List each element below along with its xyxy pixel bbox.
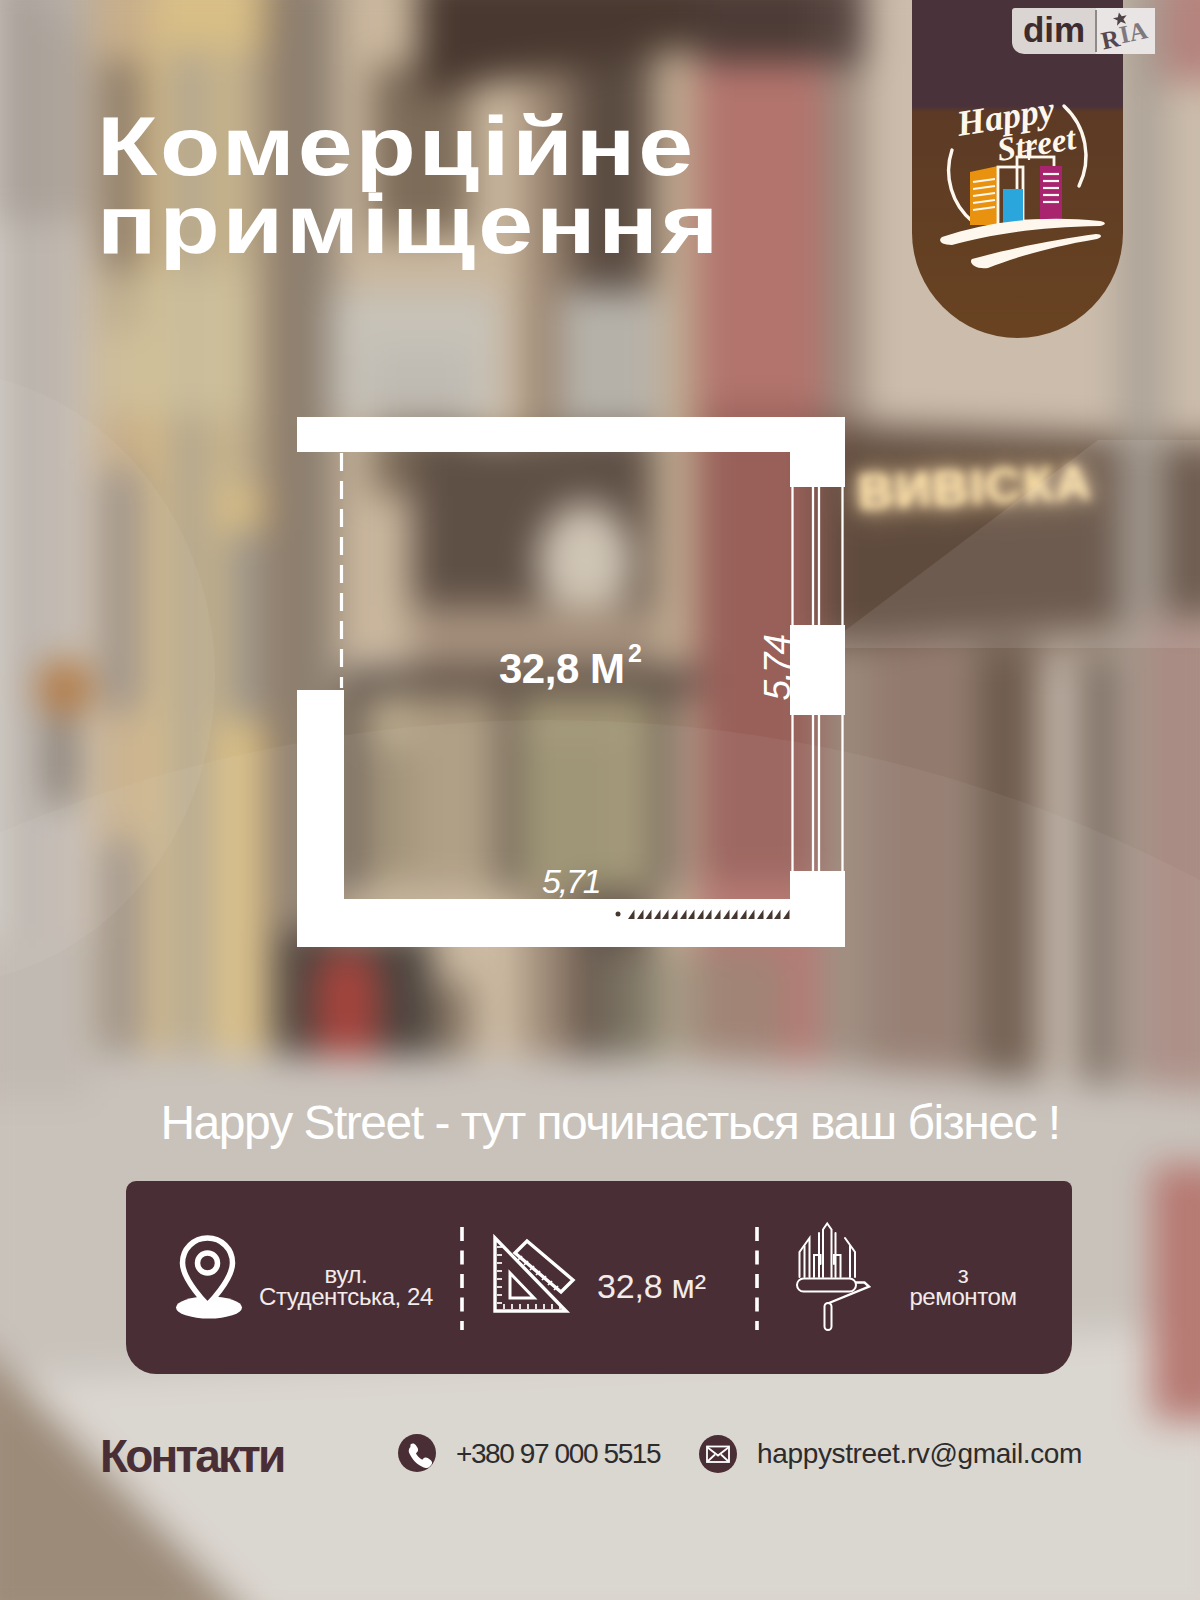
svg-text:32,8 м²: 32,8 м² [597,1267,706,1305]
svg-text:5,71: 5,71 [542,862,600,900]
svg-text:2: 2 [628,639,642,667]
svg-text:32,8 М: 32,8 М [499,645,624,692]
svg-text:ремонтом: ремонтом [909,1283,1016,1310]
svg-text:Студентська, 24: Студентська, 24 [259,1283,433,1310]
svg-text:5,74: 5,74 [757,634,798,700]
